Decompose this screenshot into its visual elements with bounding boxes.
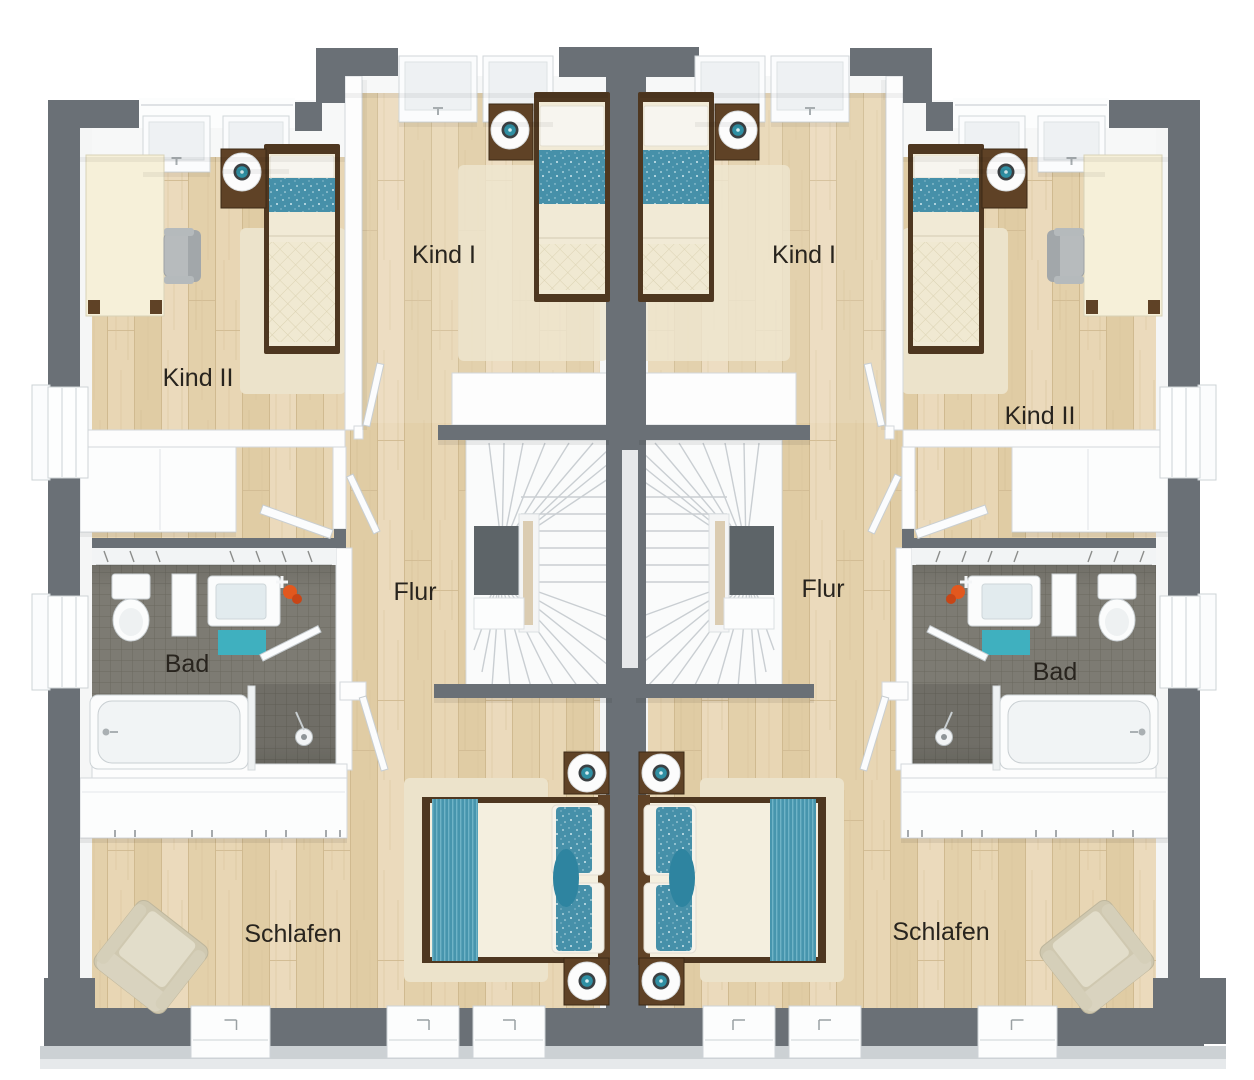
svg-text:Bad: Bad xyxy=(165,650,209,678)
svg-text:Schlafen: Schlafen xyxy=(892,918,989,946)
svg-text:Kind I: Kind I xyxy=(412,241,476,269)
svg-text:Flur: Flur xyxy=(801,575,844,603)
svg-text:Kind II: Kind II xyxy=(1005,402,1076,430)
svg-text:Kind II: Kind II xyxy=(163,364,234,392)
svg-text:Bad: Bad xyxy=(1033,658,1077,686)
svg-text:Schlafen: Schlafen xyxy=(244,920,341,948)
svg-text:Kind I: Kind I xyxy=(772,241,836,269)
svg-text:Flur: Flur xyxy=(393,578,436,606)
